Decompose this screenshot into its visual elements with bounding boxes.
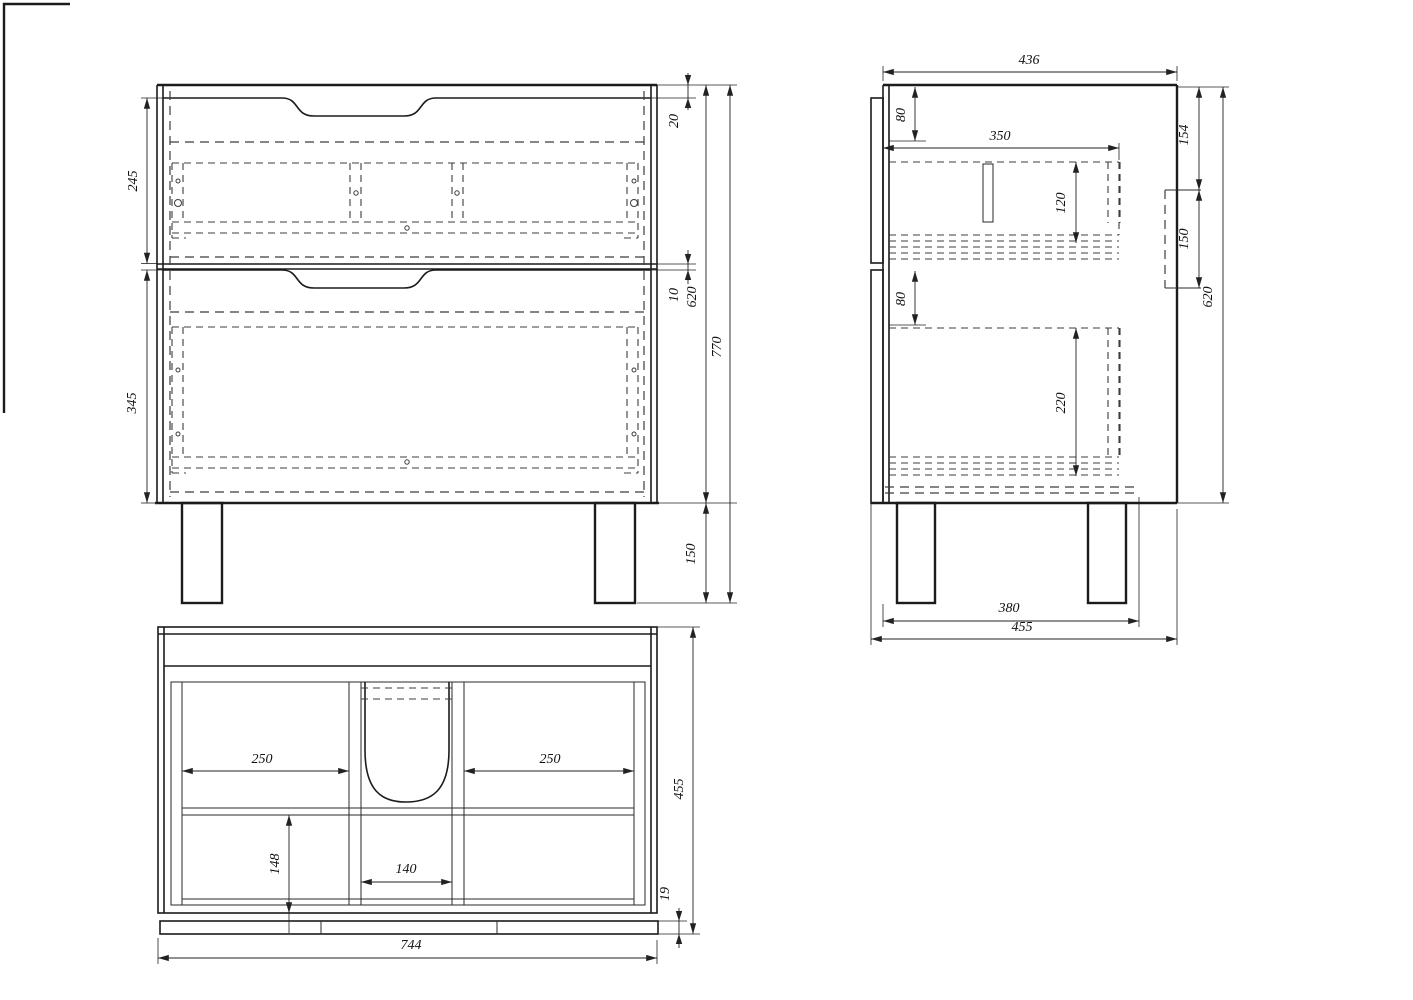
front-view: 245 345 20 10 620 150 770	[125, 73, 737, 603]
dim-front-345: 345	[125, 393, 140, 415]
dim-front-620: 620	[685, 287, 700, 308]
drawer-top-handle-recess	[163, 98, 651, 116]
dim-side-350: 350	[989, 129, 1011, 144]
drawer-bottom-handle-recess	[163, 270, 651, 288]
front-legs	[182, 503, 635, 603]
dim-front-245: 245	[126, 171, 141, 192]
front-dimensions: 245 345 20 10 620 150 770	[125, 73, 737, 603]
dim-plan-744: 744	[401, 938, 422, 953]
side-hidden-lines-bottom-drawer	[885, 328, 1138, 493]
side-view: 436 80 350 120 80 220 154 150	[871, 53, 1229, 645]
dim-plan-140: 140	[396, 862, 417, 877]
front-hidden-lines-bottom-drawer	[170, 312, 644, 492]
dim-side-80-bottom: 80	[894, 292, 909, 306]
dim-plan-250-right: 250	[540, 752, 561, 767]
side-legs	[897, 503, 1126, 603]
sheet-frame	[4, 4, 70, 413]
dim-side-455: 455	[1012, 620, 1033, 635]
dim-front-10: 10	[667, 288, 682, 302]
dim-side-220: 220	[1054, 393, 1069, 414]
front-hidden-lines-top-drawer	[170, 91, 644, 497]
dim-plan-455: 455	[672, 779, 687, 800]
sink-cutout	[365, 682, 449, 802]
dim-front-770: 770	[710, 337, 725, 358]
dim-side-120: 120	[1054, 193, 1069, 214]
dim-front-20: 20	[667, 114, 682, 128]
plan-front-panel-strip	[160, 921, 658, 934]
dim-side-380: 380	[998, 601, 1020, 616]
drawing-sheet: 245 345 20 10 620 150 770	[0, 0, 1413, 1000]
dim-side-620: 620	[1201, 287, 1216, 308]
drawing-canvas: 245 345 20 10 620 150 770	[0, 0, 1413, 1000]
dim-side-436: 436	[1019, 53, 1040, 68]
dim-side-154: 154	[1177, 125, 1192, 146]
dim-plan-148: 148	[268, 854, 283, 875]
front-carcass	[155, 85, 659, 503]
side-dimensions: 436 80 350 120 80 220 154 150	[871, 53, 1229, 645]
plan-view: 250 250 148 140 455 19 744	[158, 627, 700, 964]
dim-side-150: 150	[1177, 229, 1192, 250]
dim-plan-250-left: 250	[252, 752, 273, 767]
side-hidden-lines-top-drawer	[889, 162, 1120, 259]
dim-front-150: 150	[684, 544, 699, 565]
dim-plan-19: 19	[658, 887, 673, 901]
dim-side-80-top: 80	[894, 108, 909, 122]
